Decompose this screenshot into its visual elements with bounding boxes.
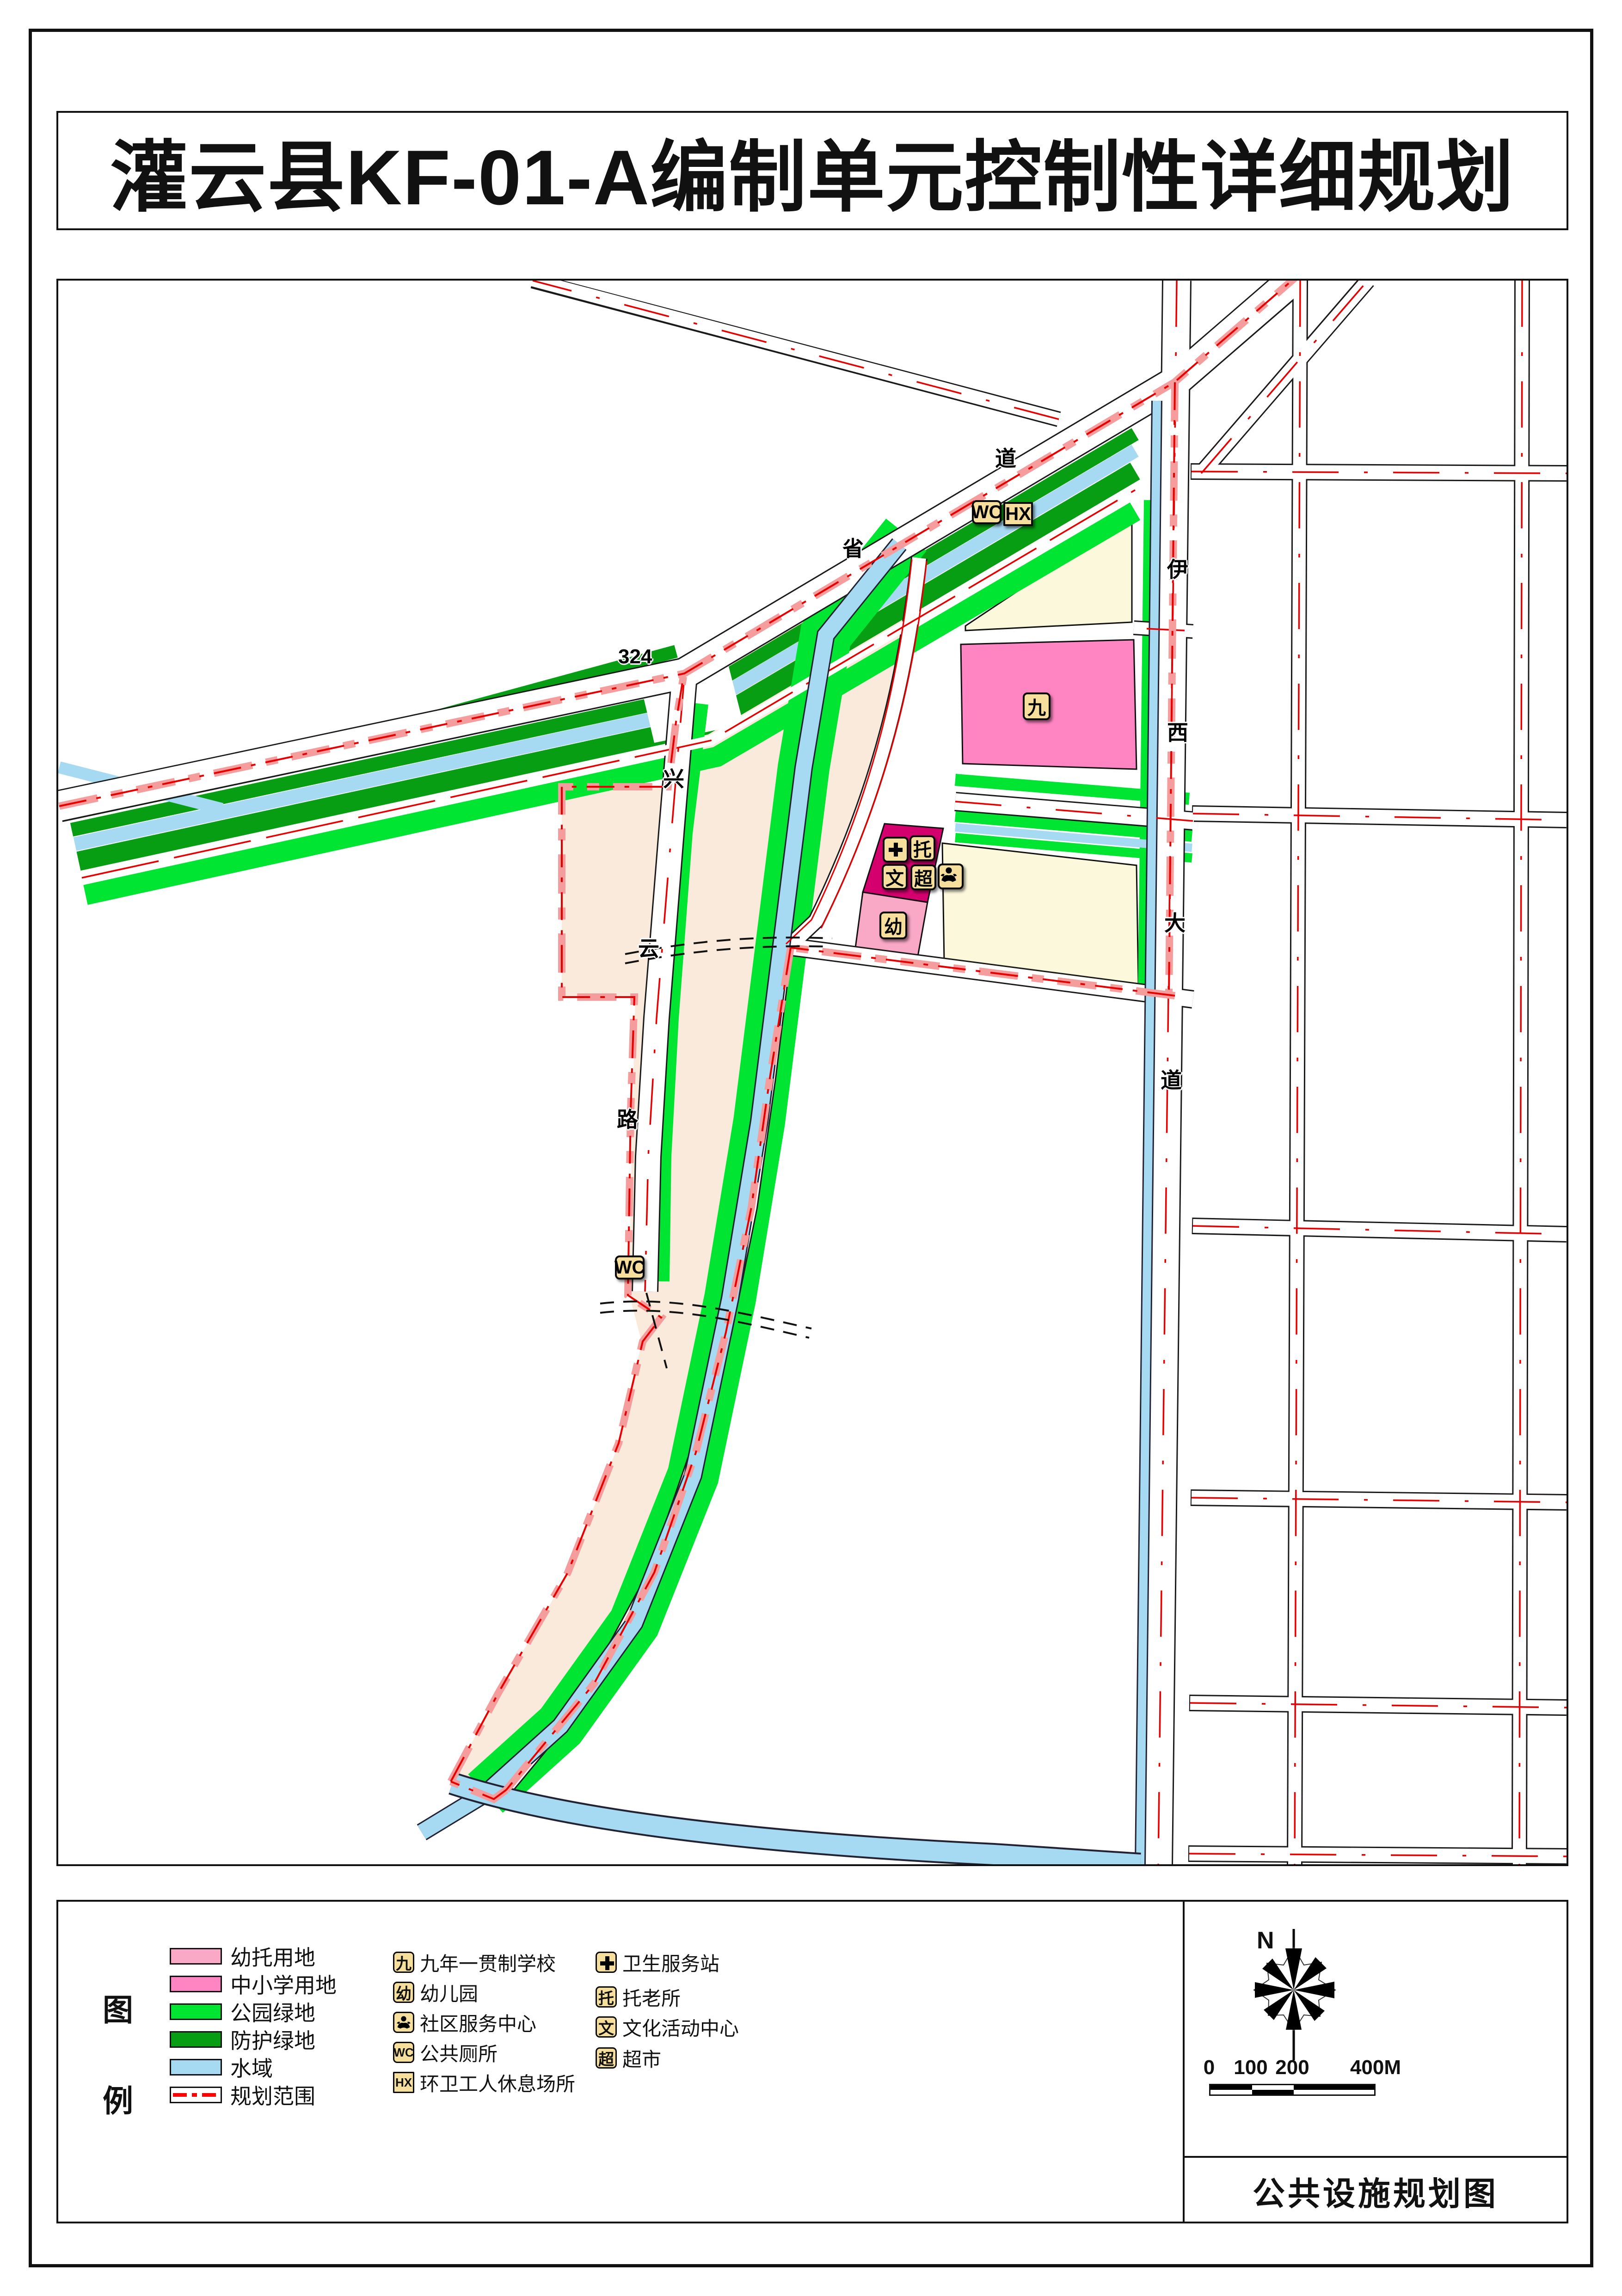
legend-icon-public-toilet: WC — [393, 2042, 414, 2063]
health-cross-icon — [600, 1956, 612, 1968]
page-title: 灌云县KF-01-A编制单元控制性详细规划 — [110, 115, 1515, 227]
legend-label: 文化活动中心 — [622, 2019, 739, 2039]
road-label: 道 — [995, 448, 1016, 469]
legend-swatch-park-green — [170, 2003, 222, 2020]
scale-tick: 0 — [1204, 2056, 1215, 2079]
legend-icon-kindergarten: 幼 — [393, 1982, 414, 2003]
legend-icon-health-station — [596, 1952, 617, 1973]
legend-icon-nine-year-school: 九 — [393, 1952, 414, 1973]
north-arrow-icon — [1244, 1925, 1346, 2064]
legend-swatch-school — [170, 1976, 222, 1992]
legend-label: 九年一贯制学校 — [420, 1954, 556, 1974]
plan-sheet: 灌云县KF-01-A编制单元控制性详细规划 — [0, 0, 1622, 2296]
road-label: 大 — [1164, 912, 1186, 934]
legend-swatch-water — [170, 2059, 222, 2076]
public-toilet-icon: WC — [972, 500, 1001, 524]
scale-tick: 400M — [1350, 2056, 1401, 2079]
legend-swatch-boundary — [170, 2087, 222, 2103]
legend-label: 幼儿园 — [420, 1984, 478, 2004]
legend-icon-elderly-care: 托 — [596, 1986, 617, 2008]
road-label: 路 — [617, 1109, 638, 1130]
legend-label: 超市 — [622, 2050, 661, 2069]
public-toilet-icon: WC — [615, 1255, 645, 1280]
supermarket-icon: 超 — [910, 864, 936, 890]
road-label: 云 — [638, 938, 659, 959]
legend-label: 水域 — [230, 2058, 273, 2079]
legend-title-char: 图 — [103, 1985, 133, 2030]
legend-swatch-protective-green — [170, 2031, 222, 2048]
legend-label: 社区服务中心 — [420, 2014, 536, 2034]
nine-year-school-icon: 九 — [1023, 692, 1051, 720]
legend-icon-sanitation-rest: HX — [393, 2072, 414, 2093]
legend-label: 规划范围 — [230, 2086, 315, 2107]
sheet-name: 公共设施规划图 — [1183, 2168, 1568, 2215]
kindergarten-icon: 幼 — [879, 912, 907, 939]
boundary-line-sample — [171, 2088, 221, 2102]
legend-label: 幼托用地 — [230, 1947, 315, 1968]
legend-icon-supermarket: 超 — [596, 2047, 617, 2069]
road-label: 省 — [842, 538, 864, 559]
legend-icon-community-service — [393, 2012, 414, 2033]
health-station-icon — [883, 837, 909, 863]
community-service-icon — [938, 863, 964, 889]
scale-tick: 200 — [1275, 2056, 1309, 2079]
road-label: 324 — [618, 647, 652, 667]
legend-swatch-nursery — [170, 1948, 222, 1965]
scale-bar — [1209, 2084, 1376, 2096]
elderly-care-icon: 托 — [909, 835, 935, 861]
scale-tick: 100 — [1234, 2056, 1267, 2079]
road-fills — [58, 281, 1567, 1864]
legend-label: 防护绿地 — [230, 2030, 315, 2051]
road-label: 西 — [1167, 722, 1188, 743]
legend-label: 中小学用地 — [230, 1975, 337, 1996]
legend-label: 公共厕所 — [420, 2045, 498, 2064]
legend-label: 托老所 — [622, 1989, 681, 2008]
road-label: 道 — [1161, 1070, 1182, 1091]
health-cross-icon — [889, 843, 903, 857]
road-label: 伊 — [1167, 559, 1188, 580]
sanitation-rest-icon: HX — [1003, 502, 1033, 526]
road-casings — [59, 281, 1567, 1864]
culture-center-icon: 文 — [882, 864, 908, 890]
legend-title-char: 例 — [103, 2076, 133, 2121]
title-box: 灌云县KF-01-A编制单元控制性详细规划 — [56, 111, 1568, 230]
plan-map-drawing — [58, 281, 1567, 1864]
legend-label: 公园绿地 — [230, 2002, 315, 2024]
road-label: 兴 — [663, 768, 684, 790]
person-glyph — [396, 2014, 412, 2030]
legend-label: 卫生服务站 — [622, 1954, 719, 1974]
person-glyph — [940, 865, 958, 884]
legend-label: 环卫工人休息场所 — [420, 2075, 575, 2094]
legend-divider-horizontal — [1183, 2156, 1568, 2158]
map-canvas[interactable]: 省 道 324 兴 云 路 伊 西 大 道 WC HX 九 托 文 超 幼 WC — [56, 279, 1568, 1866]
legend-icon-culture-center: 文 — [596, 2016, 617, 2038]
